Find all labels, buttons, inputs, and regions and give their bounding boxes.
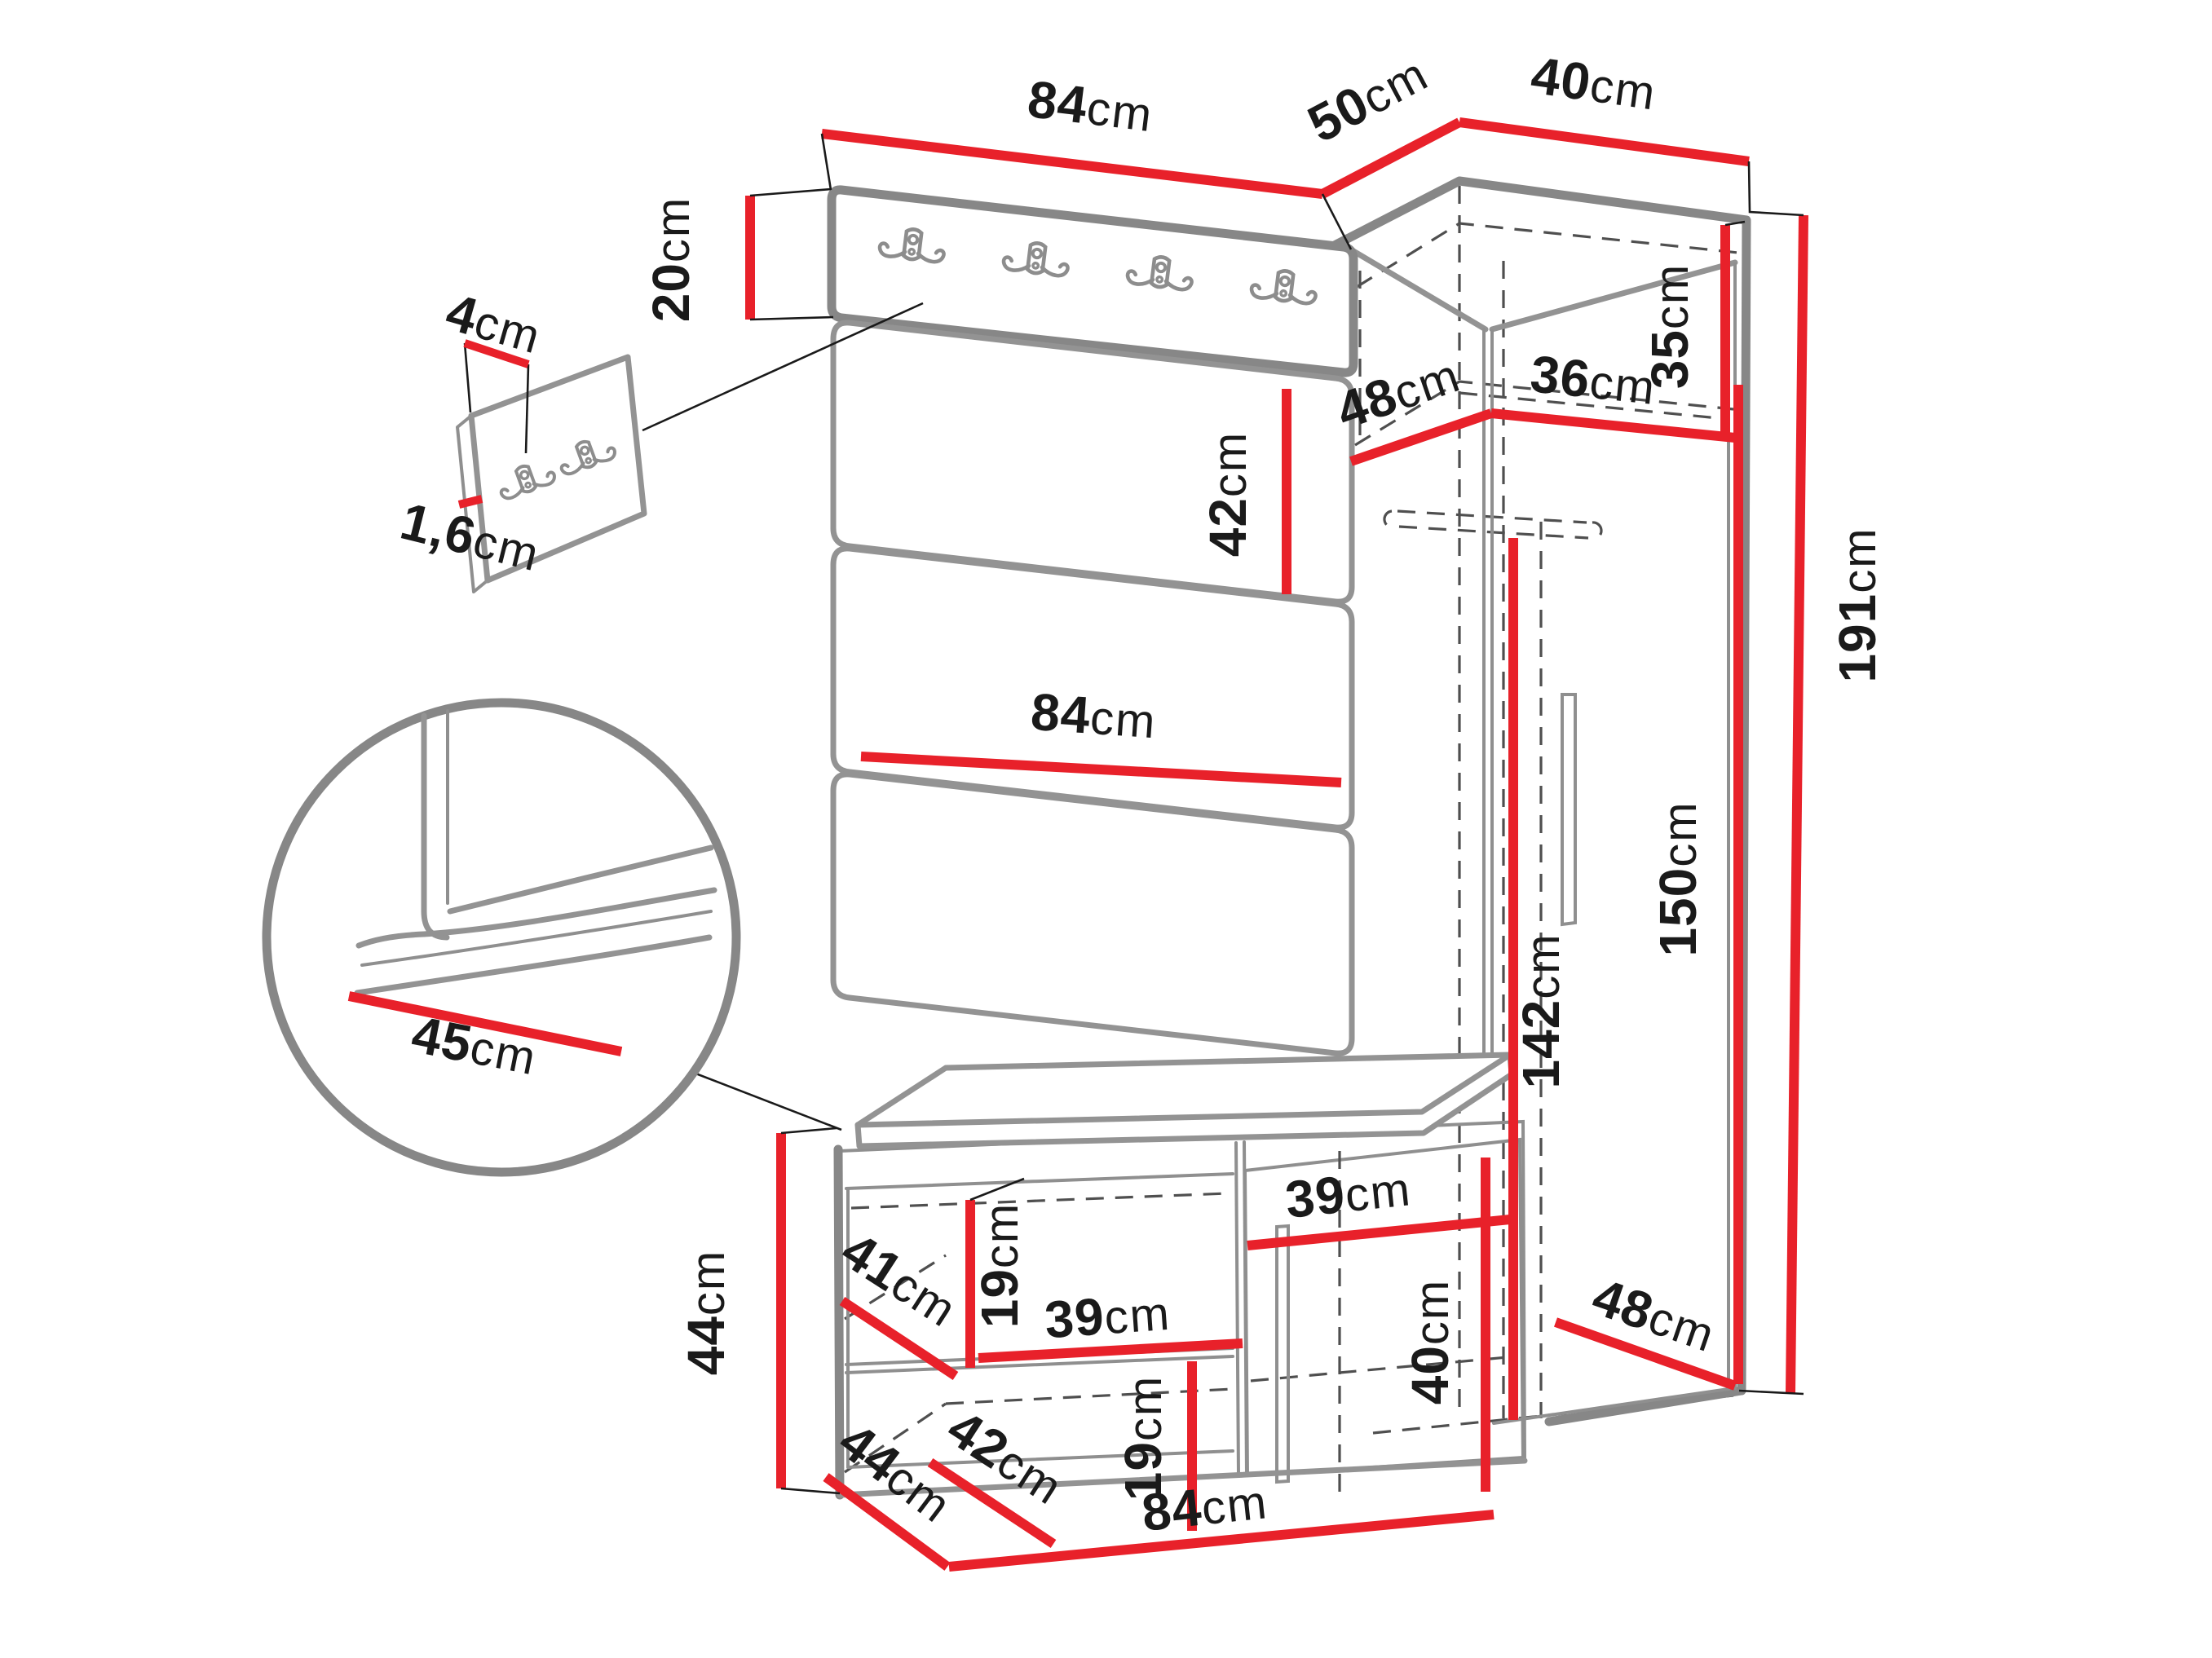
wardrobe-door-bottom-edge bbox=[1494, 1389, 1729, 1423]
wardrobe-bottom-edge bbox=[1549, 1391, 1742, 1422]
bench-door-handle bbox=[1277, 1226, 1288, 1482]
dim-label-hanging-height: 142cm bbox=[1512, 933, 1570, 1088]
bench-inner-top-edge bbox=[846, 1174, 1233, 1188]
dim-label-bench-width: 84cm bbox=[1139, 1471, 1270, 1542]
dim-label-top-shelf-height: 35cm bbox=[1640, 263, 1699, 390]
dim-label-bench-height: 44cm bbox=[677, 1250, 735, 1376]
detail-ext-left bbox=[465, 343, 470, 412]
dim-line-panel-top-width bbox=[822, 134, 1322, 194]
wardrobe-door-handle bbox=[1562, 695, 1575, 924]
dim-label-hook-board-height: 20cm bbox=[642, 196, 700, 323]
bench-door-hidden-floor bbox=[1251, 1356, 1517, 1381]
dim-label-bench-shelf-clearance: 19cm bbox=[970, 1202, 1029, 1329]
wall-panel-unit bbox=[832, 190, 1353, 1053]
bench-divider-a bbox=[1236, 1143, 1238, 1475]
dim-label-shelf-width-right: 36cm bbox=[1528, 344, 1659, 416]
dim-label-wardrobe-top-right-width: 40cm bbox=[1528, 46, 1661, 121]
dim-label-door-height: 150cm bbox=[1649, 800, 1707, 956]
wardrobe-roof-left-edge bbox=[1353, 251, 1486, 329]
dim-label-total-height: 191cm bbox=[1828, 527, 1887, 682]
bench-cushion bbox=[858, 1055, 1512, 1146]
dim-line-detail-thickness bbox=[459, 499, 482, 505]
dim-label-bench-shelf-width: 39cm bbox=[1043, 1282, 1172, 1350]
detail-circle bbox=[267, 703, 736, 1172]
dim-label-wardrobe-bottom-depth: 48cm bbox=[1585, 1267, 1724, 1363]
cushion-outline bbox=[858, 1055, 1512, 1146]
dim-label-bench-depth: 41cm bbox=[832, 1220, 969, 1338]
diagram-stage: 84cm 50cm 40cm 20cm 4cm 1,6cm 42cm 84cm … bbox=[0, 0, 2212, 1658]
wardrobe-face-top-edge bbox=[1492, 262, 1735, 329]
seat-corner-detail bbox=[267, 703, 841, 1172]
furniture-dimension-diagram: 84cm 50cm 40cm 20cm 4cm 1,6cm 42cm 84cm … bbox=[0, 0, 2212, 1658]
dim-label-panel-top-width: 84cm bbox=[1025, 69, 1157, 143]
dim-label-panel-segment-height: 42cm bbox=[1199, 431, 1257, 558]
dim-label-detail-width: 4cm bbox=[439, 282, 548, 365]
dim-line-total-height bbox=[1790, 215, 1804, 1394]
circle-callout-line bbox=[677, 1066, 841, 1130]
dim-label-bench-door-width: 39cm bbox=[1283, 1158, 1414, 1229]
bench-hidden-back-top bbox=[851, 1193, 1228, 1208]
dim-label-wardrobe-top-left-depth: 50cm bbox=[1299, 43, 1437, 154]
wardrobe-top-back-edges bbox=[1327, 181, 1746, 249]
dim-label-bench-door-height: 40cm bbox=[1401, 1279, 1459, 1405]
dim-line-wardrobe-top-right bbox=[1459, 122, 1749, 161]
